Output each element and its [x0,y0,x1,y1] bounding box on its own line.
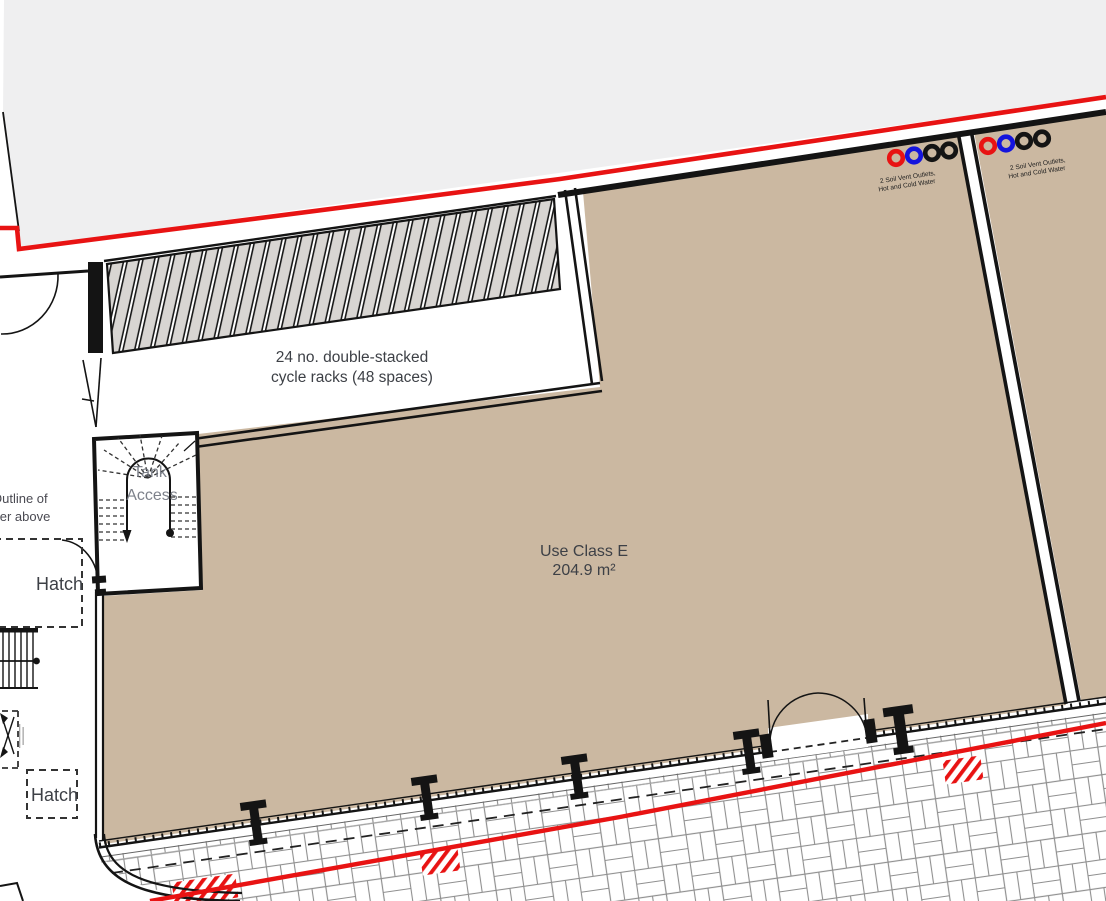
unit-use-class-label: Use Class E [540,543,628,560]
cycle-racks-label-line1: 24 no. double-stacked [276,349,429,366]
stair-rail-end-dot [166,529,174,537]
floor-plan-page: 2 Soil Vent Outlets, Hot and Cold Water … [0,0,1106,901]
cycle-racks-label-line2: cycle racks (48 spaces) [271,369,433,386]
riser-note-line2: riser above [0,509,50,524]
tank-access-label-line1: Tank [133,464,168,481]
hatch-upper-label: Hatch [36,574,83,594]
tank-access-label-line2: Access [126,487,178,504]
riser-note-line1: Outline of [0,491,48,506]
hatch-lower-label: Hatch [31,785,78,805]
floor-plan-drawing: 2 Soil Vent Outlets, Hot and Cold Water … [0,0,1106,901]
unit-area-label: 204.9 m² [552,562,616,579]
tank-access-stair [94,433,201,594]
